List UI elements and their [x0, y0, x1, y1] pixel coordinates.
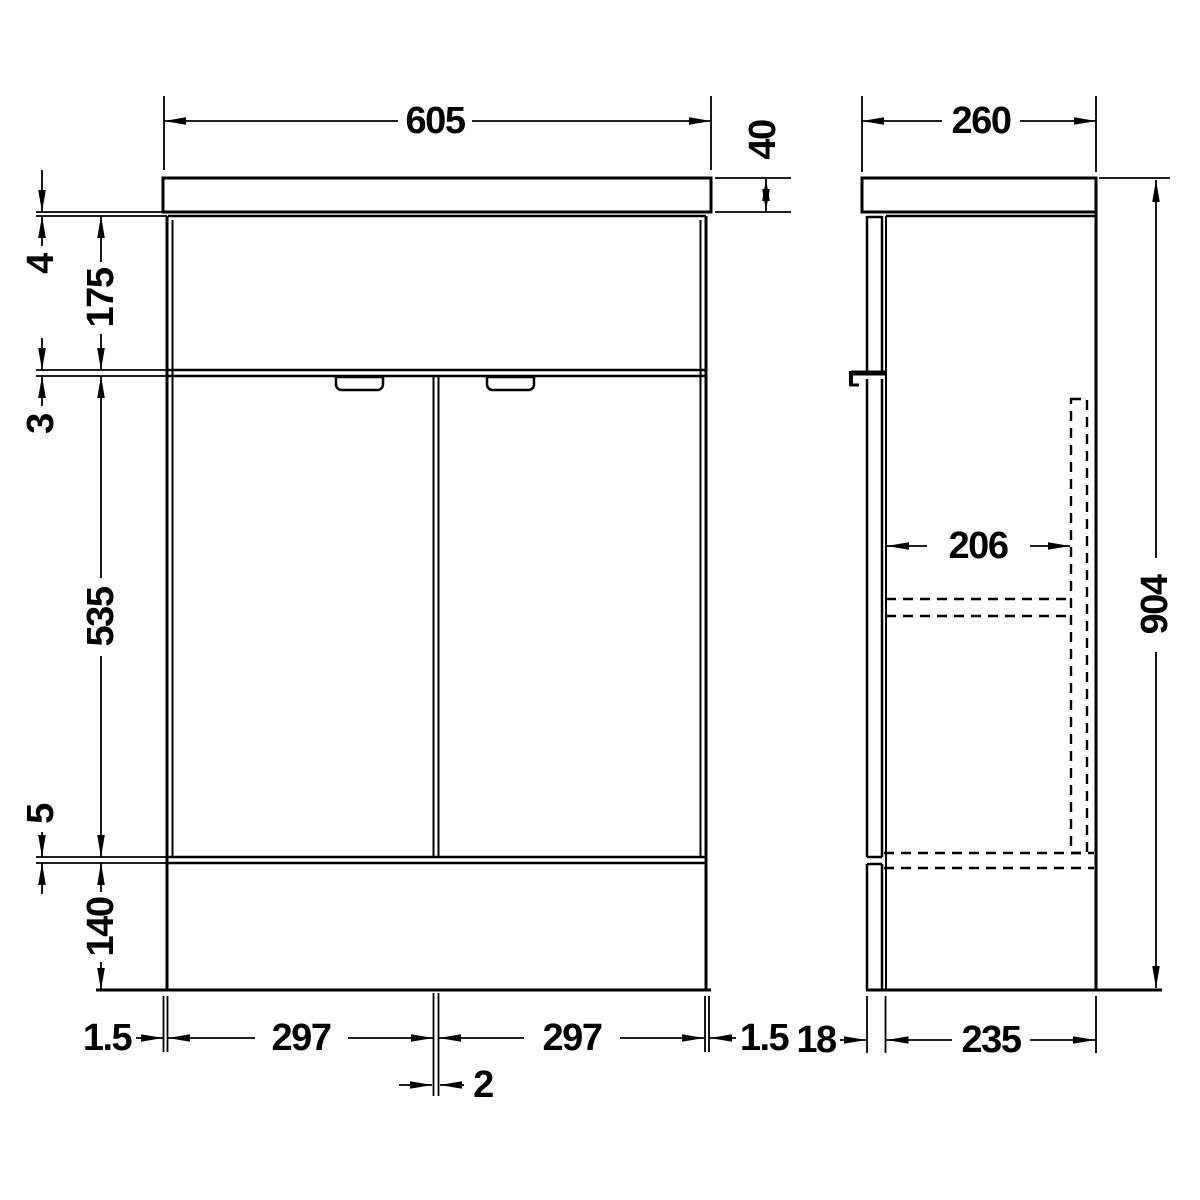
dim-overall-depth: 260	[862, 96, 1096, 172]
dim-internal-depth-label: 206	[949, 525, 1008, 567]
dim-right-door-width-label: 297	[543, 1017, 602, 1059]
dim-plinth-height: 140	[80, 863, 122, 990]
dim-worktop-thickness-label: 40	[742, 120, 784, 160]
dim-overall-height-label: 904	[1134, 574, 1176, 634]
vanity-unit-dimension-drawing: 605 40 4 175 3 535	[0, 0, 1200, 1200]
dimensions-front: 605 40 4 175 3 535	[20, 96, 791, 1106]
dim-mid-gap-label: 3	[20, 414, 62, 434]
dim-bottom-gap: 5	[20, 803, 62, 894]
dim-door-height-label: 535	[80, 586, 122, 646]
dim-carcass-depth-label: 235	[962, 1019, 1022, 1061]
dim-mid-gap: 3	[20, 338, 62, 434]
dim-left-door-width: 297	[168, 1017, 433, 1059]
left-door-handle-icon	[336, 377, 383, 390]
side-plinth-panel	[867, 864, 882, 990]
dim-overall-depth-label: 260	[952, 100, 1011, 142]
dim-center-gap-label: 2	[473, 1064, 493, 1106]
dim-door-height: 535	[80, 376, 122, 857]
right-door-handle-icon	[487, 377, 534, 390]
technical-drawing-canvas: 605 40 4 175 3 535	[0, 0, 1200, 1200]
dim-right-inset-label: 1.5	[740, 1017, 790, 1059]
dim-center-gap: 2	[399, 1064, 493, 1106]
dim-door-thickness: 18	[796, 1019, 866, 1061]
dim-internal-depth: 206	[887, 525, 1070, 567]
front-door-bottom-lines	[167, 857, 706, 863]
dim-fascia-height-label: 175	[80, 267, 122, 327]
dim-top-gap-label: 4	[20, 253, 62, 274]
dim-overall-width: 605	[164, 96, 711, 170]
dim-left-inset: 1.5	[83, 1017, 163, 1059]
front-carcass-outline	[96, 216, 711, 990]
front-fascia-bottom-lines	[167, 370, 706, 376]
front-view	[96, 178, 711, 990]
dim-carcass-depth: 235	[887, 1019, 1096, 1061]
dim-top-gap: 4	[20, 170, 62, 274]
dim-plinth-height-label: 140	[80, 897, 122, 956]
dim-overall-height: 904	[1099, 178, 1176, 988]
front-worktop	[163, 178, 711, 212]
dim-fascia-height: 175	[80, 216, 122, 370]
hidden-bottom-shelf	[884, 853, 1094, 868]
dimensions-side: 260 206 904 18 235	[796, 96, 1176, 1061]
hidden-middle-shelf	[886, 599, 1071, 616]
side-worktop	[862, 178, 1096, 212]
dim-right-door-width: 297	[439, 1017, 704, 1059]
dim-overall-width-label: 605	[406, 100, 466, 142]
hidden-back-panel	[1071, 399, 1087, 853]
side-fascia-panel	[867, 216, 882, 372]
front-door-divider	[434, 376, 439, 857]
dim-right-inset: 1.5	[710, 1017, 790, 1059]
dim-left-inset-label: 1.5	[83, 1017, 133, 1059]
dim-bottom-gap-label: 5	[20, 803, 62, 824]
dim-left-door-width-label: 297	[272, 1017, 331, 1059]
side-door-panel	[867, 379, 882, 857]
dim-worktop-thickness: 40	[715, 120, 791, 212]
dim-door-thickness-label: 18	[796, 1019, 836, 1061]
side-carcass-outline	[866, 212, 1162, 990]
front-bottom-extension-lines	[164, 993, 710, 1096]
side-view	[850, 178, 1162, 990]
